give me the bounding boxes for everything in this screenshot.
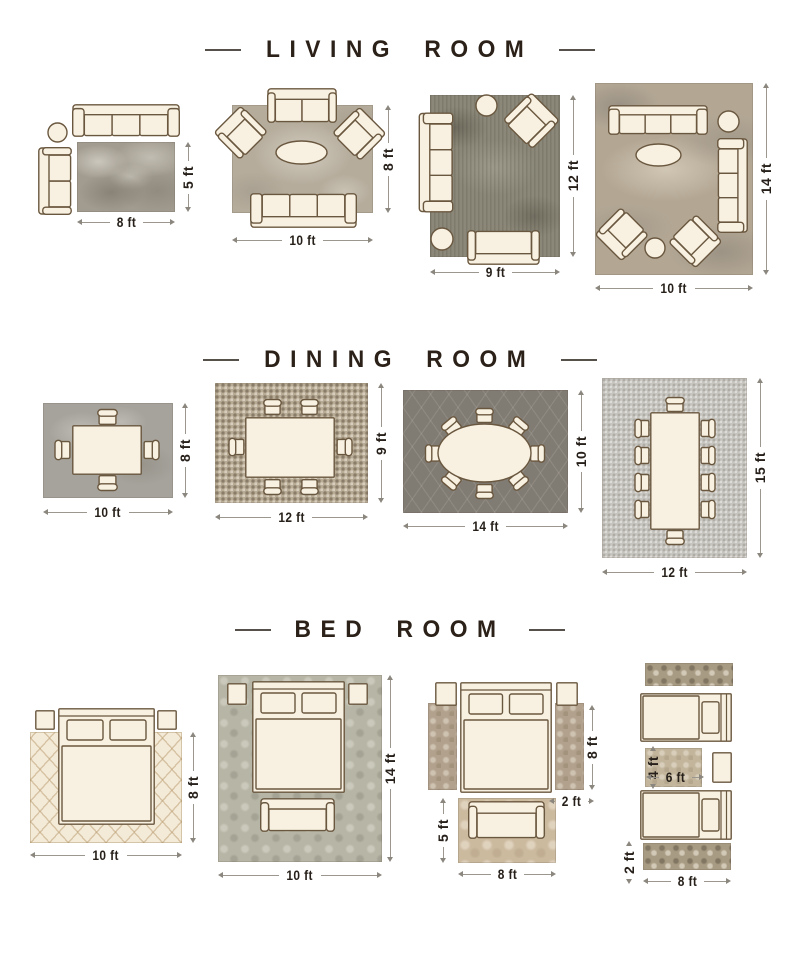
dim-line bbox=[82, 222, 110, 223]
bed bbox=[460, 682, 552, 793]
dimension-annotation: 10 ft bbox=[218, 867, 382, 883]
dim-line bbox=[388, 176, 389, 209]
dining-chair bbox=[143, 440, 159, 461]
dim-line bbox=[524, 874, 552, 875]
dimension-annotation: 8 ft bbox=[584, 705, 600, 790]
dining-chair bbox=[475, 484, 494, 499]
dim-line bbox=[581, 395, 582, 431]
oval-table bbox=[635, 143, 682, 167]
dimension-annotation: 8 ft bbox=[177, 403, 193, 498]
dim-line bbox=[48, 512, 87, 513]
nightstand bbox=[712, 752, 732, 783]
dining-chair bbox=[701, 418, 716, 438]
dim-line bbox=[766, 88, 767, 158]
dim-line bbox=[573, 197, 574, 252]
dining-chair bbox=[97, 475, 118, 491]
dim-line bbox=[193, 737, 194, 771]
dimension-annotation: 10 ft bbox=[573, 390, 589, 513]
dimension-annotation: 12 ft bbox=[215, 509, 368, 525]
dim-line bbox=[581, 472, 582, 508]
dimension-label: 5 ft bbox=[436, 819, 450, 842]
dim-line bbox=[237, 240, 282, 241]
nightstand bbox=[556, 682, 578, 706]
dim-arrow-icon bbox=[570, 252, 576, 257]
dim-line bbox=[760, 383, 761, 447]
dining-chair bbox=[635, 499, 650, 519]
dimension-annotation: 5 ft bbox=[435, 798, 451, 863]
dining-chair bbox=[475, 408, 494, 423]
dimension-label: 12 ft bbox=[278, 510, 305, 524]
dimension-annotation: 2 ft bbox=[621, 841, 637, 872]
round-table bbox=[644, 237, 666, 259]
nightstand bbox=[227, 683, 247, 705]
dimension-label: 10 ft bbox=[289, 233, 316, 247]
dimension-annotation: 14 ft bbox=[403, 518, 568, 534]
dim-arrow-icon bbox=[650, 746, 656, 751]
bed-twin bbox=[640, 693, 732, 742]
dimension-label: 2 ft bbox=[622, 851, 636, 874]
dim-arrow-icon bbox=[626, 841, 632, 846]
dimension-label: 9 ft bbox=[485, 265, 505, 279]
dining-chair bbox=[635, 445, 650, 465]
dimension-label: 10 ft bbox=[95, 505, 122, 519]
dimension-label: 15 ft bbox=[753, 452, 767, 483]
dim-line bbox=[188, 194, 189, 208]
dim-line bbox=[435, 272, 479, 273]
dining-chair bbox=[336, 438, 352, 457]
dim-line bbox=[695, 572, 742, 573]
dimension-annotation: 6 ft bbox=[646, 769, 704, 785]
dimension-annotation: 10 ft bbox=[43, 504, 173, 520]
dim-line bbox=[381, 388, 382, 427]
dim-arrow-icon bbox=[368, 237, 373, 243]
dimension-annotation: 14 ft bbox=[758, 83, 774, 275]
dim-line bbox=[651, 777, 659, 778]
dim-line bbox=[35, 855, 85, 856]
sofa bbox=[717, 138, 748, 233]
dim-line bbox=[312, 517, 363, 518]
dining-chair bbox=[701, 445, 716, 465]
oval-table bbox=[437, 423, 532, 483]
nightstand bbox=[157, 710, 177, 730]
dim-line bbox=[193, 804, 194, 838]
dimension-annotation: 9 ft bbox=[373, 383, 389, 503]
dim-arrow-icon bbox=[763, 270, 769, 275]
dimension-label: 8 ft bbox=[381, 148, 395, 171]
dimension-annotation: 15 ft bbox=[752, 378, 768, 558]
bed bbox=[58, 708, 155, 825]
bed bbox=[252, 681, 345, 793]
dim-arrow-icon bbox=[185, 207, 191, 212]
dimension-annotation: 12 ft bbox=[565, 95, 581, 257]
dim-arrow-icon bbox=[168, 509, 173, 515]
dining-chair bbox=[300, 399, 319, 415]
dimension-label: 8 ft bbox=[585, 736, 599, 759]
dim-arrow-icon bbox=[589, 798, 594, 804]
sofa bbox=[418, 112, 453, 212]
dim-arrow-icon bbox=[387, 857, 393, 862]
dim-arrow-icon bbox=[378, 498, 384, 503]
dim-arrow-icon bbox=[699, 774, 704, 780]
nightstand bbox=[35, 710, 55, 730]
round-table bbox=[430, 227, 454, 251]
dining-chair bbox=[665, 530, 685, 545]
dim-arrow-icon bbox=[440, 858, 446, 863]
dimension-annotation: 12 ft bbox=[602, 564, 747, 580]
dim-arrow-icon bbox=[363, 514, 368, 520]
dimension-label: 14 ft bbox=[472, 519, 499, 533]
dim-arrow-icon bbox=[726, 878, 731, 884]
sofa bbox=[468, 801, 545, 839]
dimension-annotation: 10 ft bbox=[595, 280, 753, 296]
rug-runner-faded bbox=[428, 703, 457, 790]
dim-line bbox=[760, 489, 761, 553]
dim-line bbox=[443, 847, 444, 858]
dim-line bbox=[692, 777, 700, 778]
dimension-annotation: 14 ft bbox=[382, 675, 398, 862]
rug-ornate-runner bbox=[645, 663, 733, 686]
dimension-label: 12 ft bbox=[661, 565, 688, 579]
dim-arrow-icon bbox=[170, 219, 175, 225]
dim-arrow-icon bbox=[626, 879, 632, 884]
dim-line bbox=[223, 875, 279, 876]
dim-line bbox=[321, 875, 377, 876]
sofa bbox=[250, 193, 357, 228]
dimension-label: 5 ft bbox=[181, 166, 195, 189]
nightstand bbox=[435, 682, 457, 706]
rect-table bbox=[72, 425, 142, 475]
sofa bbox=[267, 88, 337, 123]
dimension-label: 10 ft bbox=[574, 436, 588, 467]
sofa bbox=[260, 798, 335, 832]
dimension-annotation: 8 ft bbox=[643, 873, 731, 889]
dining-chair bbox=[263, 479, 282, 495]
rug-size-guide-poster: LIVING ROOM DINING ROOM BED ROOM 5 ft8 f… bbox=[0, 0, 800, 978]
dimension-annotation: 8 ft bbox=[185, 732, 201, 843]
dim-line bbox=[443, 803, 444, 814]
dimension-label: 8 ft bbox=[677, 874, 697, 888]
dim-line bbox=[388, 110, 389, 143]
dimension-label: 2 ft bbox=[562, 794, 582, 808]
sofa bbox=[72, 104, 180, 137]
dim-line bbox=[381, 460, 382, 499]
dim-line bbox=[323, 240, 368, 241]
oval-table bbox=[275, 140, 328, 165]
dining-chair bbox=[701, 499, 716, 519]
dim-line bbox=[554, 801, 555, 802]
sofa bbox=[38, 147, 72, 215]
dining-chair bbox=[300, 479, 319, 495]
dimension-label: 8 ft bbox=[497, 867, 517, 881]
rug-ornate-runner bbox=[643, 843, 731, 870]
dim-line bbox=[704, 881, 727, 882]
dimension-annotation: 5 ft bbox=[180, 142, 196, 212]
dim-line bbox=[766, 200, 767, 270]
dimension-label: 6 ft bbox=[665, 770, 685, 784]
dim-line bbox=[592, 764, 593, 785]
dining-chair bbox=[701, 472, 716, 492]
dimension-label: 10 ft bbox=[93, 848, 120, 862]
dining-chair bbox=[635, 472, 650, 492]
dim-line bbox=[220, 517, 271, 518]
dim-line bbox=[592, 710, 593, 731]
dim-line bbox=[143, 222, 171, 223]
dim-arrow-icon bbox=[182, 493, 188, 498]
dimension-label: 8 ft bbox=[116, 215, 136, 229]
dim-arrow-icon bbox=[748, 285, 753, 291]
dimension-label: 14 ft bbox=[383, 753, 397, 784]
dim-line bbox=[512, 272, 556, 273]
dimension-annotation: 8 ft bbox=[77, 214, 175, 230]
dimension-label: 10 ft bbox=[287, 868, 314, 882]
dim-arrow-icon bbox=[578, 508, 584, 513]
dim-arrow-icon bbox=[177, 852, 182, 858]
dim-line bbox=[648, 881, 671, 882]
dining-chair bbox=[97, 409, 118, 425]
dim-line bbox=[463, 874, 491, 875]
dining-chair bbox=[228, 438, 244, 457]
rect-table bbox=[650, 412, 700, 530]
dimension-annotation: 8 ft bbox=[458, 866, 556, 882]
dim-line bbox=[573, 100, 574, 155]
sofa bbox=[608, 105, 708, 135]
dimension-annotation: 10 ft bbox=[30, 847, 182, 863]
dimension-label: 8 ft bbox=[178, 439, 192, 462]
dining-chair bbox=[54, 440, 70, 461]
dim-arrow-icon bbox=[757, 553, 763, 558]
dim-arrow-icon bbox=[563, 523, 568, 529]
dining-chair bbox=[263, 399, 282, 415]
dim-arrow-icon bbox=[589, 785, 595, 790]
rect-table bbox=[245, 417, 335, 478]
nightstand bbox=[348, 683, 368, 705]
dining-chair bbox=[665, 397, 685, 412]
dim-line bbox=[506, 526, 563, 527]
dim-arrow-icon bbox=[385, 208, 391, 213]
dimension-annotation: 8 ft bbox=[380, 105, 396, 213]
round-table bbox=[717, 110, 740, 133]
dim-line bbox=[185, 408, 186, 434]
dim-line bbox=[390, 789, 391, 857]
dim-line bbox=[188, 147, 189, 161]
dim-line bbox=[600, 288, 653, 289]
dimension-annotation: 9 ft bbox=[430, 264, 560, 280]
dim-arrow-icon bbox=[555, 269, 560, 275]
dimension-label: 14 ft bbox=[759, 163, 773, 194]
bed-twin bbox=[640, 790, 732, 840]
dim-arrow-icon bbox=[377, 872, 382, 878]
dim-line bbox=[408, 526, 465, 527]
dim-line bbox=[127, 855, 177, 856]
dim-line bbox=[390, 680, 391, 748]
dim-arrow-icon bbox=[742, 569, 747, 575]
dimension-label: 10 ft bbox=[661, 281, 688, 295]
round-table bbox=[475, 94, 498, 117]
diagram-scene: 5 ft8 ft8 ft10 ft12 ft9 ft14 ft10 ft8 ft… bbox=[0, 0, 800, 978]
dim-line bbox=[607, 572, 654, 573]
dim-line bbox=[185, 467, 186, 493]
dimension-label: 12 ft bbox=[566, 160, 580, 191]
dim-line bbox=[695, 288, 748, 289]
dim-line bbox=[129, 512, 168, 513]
round-table bbox=[47, 122, 68, 143]
dimension-annotation: 10 ft bbox=[232, 232, 373, 248]
dimension-annotation: 2 ft bbox=[549, 793, 594, 809]
dim-arrow-icon bbox=[551, 871, 556, 877]
sofa bbox=[467, 230, 540, 265]
rug-mottled-gray bbox=[77, 142, 175, 212]
dining-chair bbox=[635, 418, 650, 438]
dimension-label: 9 ft bbox=[374, 432, 388, 455]
rug-runner-faded bbox=[555, 703, 584, 790]
dim-arrow-icon bbox=[190, 838, 196, 843]
dimension-label: 8 ft bbox=[186, 776, 200, 799]
